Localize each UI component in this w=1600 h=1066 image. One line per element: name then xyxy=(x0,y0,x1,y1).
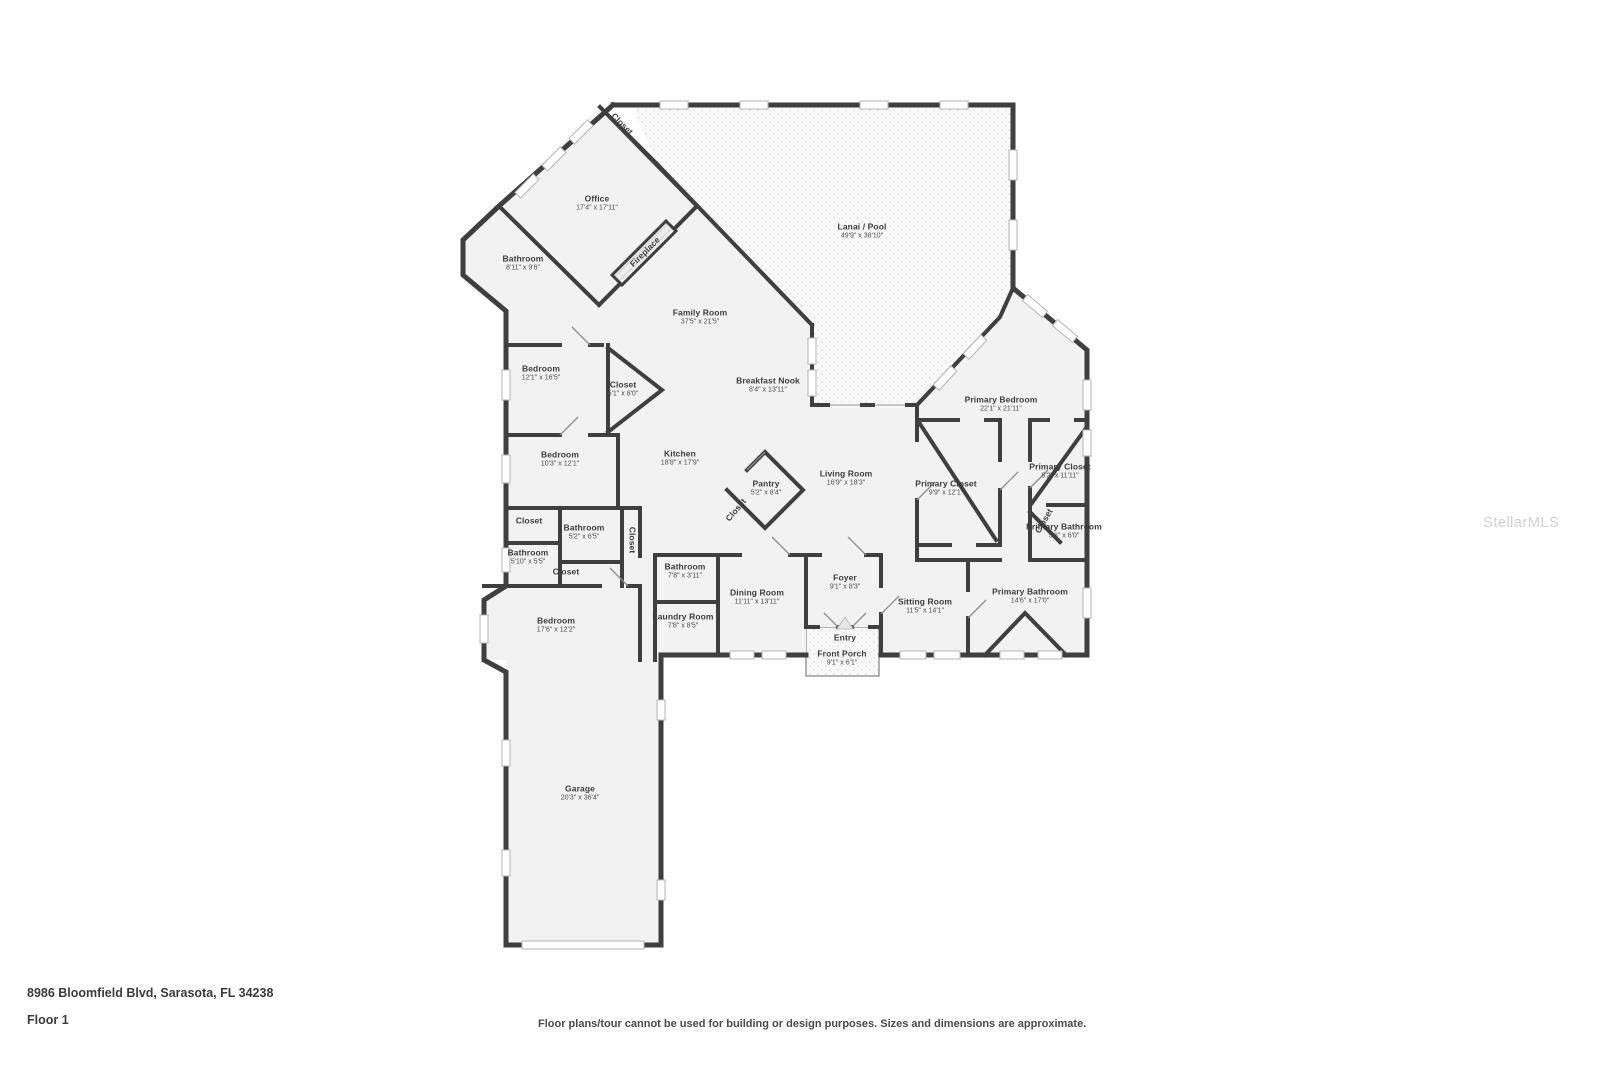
disclaimer-text: Floor plans/tour cannot be used for buil… xyxy=(538,1018,1086,1030)
stellar-mls-watermark: StellarMLS xyxy=(1483,514,1559,531)
floor-label: Floor 1 xyxy=(27,1013,69,1027)
floor-plan-page: Closet Office17'4" x 17'11" Bathroom8'11… xyxy=(0,0,1600,1066)
front-porch-area xyxy=(806,627,879,676)
property-address: 8986 Bloomfield Blvd, Sarasota, FL 34238 xyxy=(27,986,273,1000)
garage-floor xyxy=(506,655,661,945)
floor-plan-drawing xyxy=(0,0,1600,1066)
